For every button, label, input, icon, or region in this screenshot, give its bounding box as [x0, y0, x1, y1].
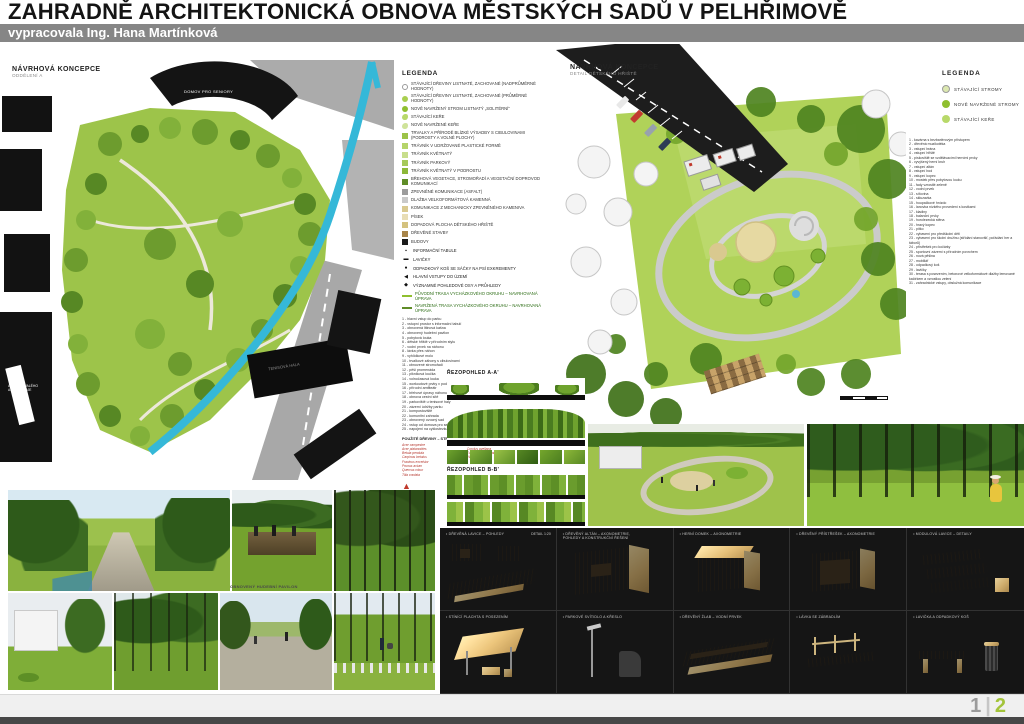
furniture-cell-shelter: • DŘEVĚNÝ PŘÍSTŘEŠEK – AXONOMETRIE — [790, 528, 907, 611]
legend-item-label: TRÁVNÍK KVĚTNATÝ V PODROSTU — [411, 169, 481, 174]
right-plan-subtitle: DETAIL DĚTSKÉHO HŘIŠTĚ — [570, 71, 658, 76]
legend-swatch — [402, 222, 408, 228]
legend-item: NOVĚ NAVRŽENÝ STROM LISTNATÝ „SOLITÉRNÍ“ — [402, 106, 550, 112]
legend-item-label: ZPEVNĚNÉ KOMUNIKACE (ASFALT) — [411, 190, 482, 195]
furniture-cell-modular-bench: • MODULOVÁ LAVICE – DETAILY — [907, 528, 1024, 611]
legend-swatch — [402, 152, 408, 158]
legend-route-item: NAVRŽENÁ TRASA VYCHÁZKOVÉHO OKRUHU – NAV… — [402, 303, 550, 313]
section-b-label: ŘEZOPOHLED B-B' — [447, 467, 499, 473]
legend-item-label: NOVĚ NAVRŽENÝ STROM LISTNATÝ „SOLITÉRNÍ“ — [411, 107, 510, 112]
legend-detail-items: STÁVAJÍCÍ STROMY NOVĚ NAVRŽENÉ STROMY ST… — [906, 85, 1024, 123]
legend-item: STÁVAJÍCÍ KEŘE — [402, 114, 550, 120]
legend-item-label: TRÁVNÍK V UDRŽOVANÉ PLASTICKÉ FORMĚ — [411, 144, 501, 149]
furniture-cell-footbridge: • LÁVKA SE ZÁBRADLÍM — [790, 611, 907, 694]
section-a2-drawing — [447, 404, 585, 446]
legend-main-title: LEGENDA — [402, 70, 550, 77]
legend-swatch — [402, 123, 408, 129]
right-plan-title-block: NÁVRHOVÁ KONCEPCE DETAIL DĚTSKÉHO HŘIŠTĚ — [570, 64, 658, 76]
site-plan-left: NÁVRHOVÁ KONCEPCE ODDĚLENÍ A DOMOV PRO S… — [0, 44, 394, 490]
areal-label: AREÁL BÝVALÉHO AGROSTROJE — [8, 384, 38, 393]
legend-swatch — [402, 179, 408, 185]
legend-detail-swatch — [942, 85, 950, 93]
visualization-photo-path — [8, 490, 230, 591]
furniture-cell-play-house: • HERNÍ DOMEK – AXONOMETRIE — [674, 528, 791, 611]
legend-item-label: BŘEHOVÁ VEGETACE, STROMOŘADÍ A VEGETAČNÍ… — [411, 177, 550, 187]
legend-item: BUDOVY — [402, 239, 550, 245]
visualization-photo-walk — [334, 593, 435, 690]
furniture-cell-bench-views: • DŘEVĚNÁ LAVICE – POHLEDY DETAIL 1:20 — [440, 528, 557, 611]
legend-item-label: TRVALKY A PŘÍRODĚ BLÍZKÉ VÝSADBY S CIBUL… — [411, 131, 550, 141]
legend-symbol-item: ▬ LAVIČKY — [402, 256, 550, 262]
route-dash-swatch — [402, 307, 412, 309]
legend-item-label: DOPADOVÁ PLOCHA DĚTSKÉHO HŘIŠTĚ — [411, 223, 493, 228]
legend-detail-swatch — [942, 115, 950, 123]
left-plan-title: NÁVRHOVÁ KONCEPCE — [12, 66, 100, 73]
page-separator: | — [981, 695, 995, 717]
furniture-cell-channel: • DŘEVĚNÝ ŽLAB – VODNÍ PRVEK — [674, 611, 791, 694]
legend-symbol-label: HLAVNÍ VSTUPY DO ÚZEMÍ — [413, 274, 467, 279]
legend-detail-item: NOVĚ NAVRŽENÉ STROMY — [942, 100, 1024, 108]
site-plan-left-map — [0, 44, 394, 490]
legend-item-label: BUDOVY — [411, 240, 429, 245]
legend-swatch — [402, 189, 408, 195]
legend-swatch — [402, 239, 408, 245]
legend-detail-item: STÁVAJÍCÍ STROMY — [942, 85, 1024, 93]
footer-bar — [0, 694, 1024, 717]
numbered-item: 30 - terasa s posezením, betonové velkof… — [909, 272, 1022, 281]
legend-swatch — [402, 231, 408, 237]
legend-main-items: STÁVAJÍCÍ DŘEVINY LISTNATÉ, ZACHOVANÉ (N… — [402, 82, 550, 245]
legend-swatch — [402, 214, 408, 220]
section-a-label: ŘEZOPOHLED A-A' — [447, 370, 499, 376]
legend-item: STÁVAJÍCÍ DŘEVINY LISTNATÉ, ZACHOVANÉ (N… — [402, 82, 550, 92]
scale-bar — [840, 396, 888, 400]
legend-symbol-item: ▪ INFORMAČNÍ TABULE — [402, 248, 550, 254]
legend-symbol-icon: ● — [402, 265, 410, 271]
legend-swatch — [402, 96, 408, 102]
legend-item: TRÁVNÍK KVĚTNATÝ V PODROSTU — [402, 168, 550, 174]
legend-item: TRVALKY A PŘÍRODĚ BLÍZKÉ VÝSADBY S CIBUL… — [402, 131, 550, 141]
visualization-photo-promenade — [220, 593, 332, 690]
subtitle-bar: vypracovala Ing. Hana Martínková — [0, 24, 1024, 42]
seniors-label: DOMOV PRO SENIORY — [184, 89, 233, 94]
legend-swatch — [402, 133, 408, 139]
legend-swatch — [402, 106, 408, 112]
visualization-photo-building — [8, 593, 112, 690]
legend-item: TRÁVNÍK V UDRŽOVANÉ PLASTICKÉ FORMĚ — [402, 143, 550, 149]
furniture-cell-shade-sail: • STÍNÍCÍ PLACHTA S POSEZENÍM — [440, 611, 557, 694]
presentation-board: ZAHRADNĚ ARCHITEKTONICKÁ OBNOVA MĚSTSKÝC… — [0, 0, 1024, 724]
legend-item: DOPADOVÁ PLOCHA DĚTSKÉHO HŘIŠTĚ — [402, 222, 550, 228]
legend-route-label: NAVRŽENÁ TRASA VYCHÁZKOVÉHO OKRUHU – NAV… — [415, 303, 550, 313]
legend-symbol-label: LAVIČKY — [413, 257, 430, 262]
legend-item-label: TRÁVNÍK KVĚTNATÝ — [411, 152, 452, 157]
legend-item-label: STÁVAJÍCÍ DŘEVINY LISTNATÉ, ZACHOVANÉ (N… — [411, 82, 550, 92]
legend-detail-label: STÁVAJÍCÍ KEŘE — [954, 117, 995, 122]
left-plan-title-block: NÁVRHOVÁ KONCEPCE ODDĚLENÍ A — [12, 66, 100, 78]
visualization-photo-deck — [232, 490, 332, 591]
legend-symbol-icon: ◆ — [402, 282, 410, 288]
legend-item-label: KOMUNIKACE Z MECHANICKY ZPEVNĚNÉHO KAMEN… — [411, 206, 524, 211]
furniture-cell-pavilion: • DŘEVĚNÝ ALTÁN – AXONOMETRIE, POHLEDY A… — [557, 528, 674, 611]
legend-item-label: DLAŽBA VELKOFORMÁTOVÁ KAMENNÁ — [411, 198, 491, 203]
legend-swatch — [402, 114, 408, 120]
legend-symbol-item: ◆ VÝZNAMNÉ POHLEDOVÉ OSY A PRŮHLEDY — [402, 282, 550, 288]
numbered-item: 31 - zahradnické vstupy, obslužná komuni… — [909, 281, 1022, 285]
legend-symbol-icon: ◀ — [402, 274, 410, 280]
legend-detail-label: STÁVAJÍCÍ STROMY — [954, 87, 1002, 92]
legend-item-label: DŘEVĚNÉ STAVBY — [411, 231, 448, 236]
furniture-cell-bench-bin: • LAVIČKA A ODPADKOVÝ KOŠ — [907, 611, 1024, 694]
sections-column: ŘEZOPOHLED A-A' ŘEZOPOHLED B-B' — [447, 368, 585, 528]
legend-swatch — [402, 197, 408, 203]
legend-item: TRÁVNÍK KVĚTNATÝ — [402, 152, 550, 158]
legend-symbol-item: ◀ HLAVNÍ VSTUPY DO ÚZEMÍ — [402, 274, 550, 280]
page-2-button[interactable]: 2 — [995, 695, 1006, 717]
legend-item: NOVĚ NAVRŽENÉ KEŘE — [402, 123, 550, 129]
legend-item: STÁVAJÍCÍ DŘEVINY LISTNATÉ, ZACHOVANÉ (P… — [402, 94, 550, 104]
legend-detail: LEGENDA STÁVAJÍCÍ STROMY NOVĚ NAVRŽENÉ S… — [906, 44, 1024, 434]
legend-swatch — [402, 143, 408, 149]
legend-item: PÍSEK — [402, 214, 550, 220]
legend-item: ZPEVNĚNÉ KOMUNIKACE (ASFALT) — [402, 189, 550, 195]
legend-item: DŘEVĚNÉ STAVBY — [402, 231, 550, 237]
legend-item-label: STÁVAJÍCÍ DŘEVINY LISTNATÉ, ZACHOVANÉ (P… — [411, 94, 550, 104]
legend-detail-label: NOVĚ NAVRŽENÉ STROMY — [954, 102, 1019, 107]
left-plan-subtitle: ODDĚLENÍ A — [12, 73, 100, 78]
legend-item-label: STÁVAJÍCÍ KEŘE — [411, 115, 444, 120]
legend-item: BŘEHOVÁ VEGETACE, STROMOŘADÍ A VEGETAČNÍ… — [402, 177, 550, 187]
page-1-button[interactable]: 1 — [970, 695, 981, 717]
legend-item-label: TRÁVNÍK PARKOVÝ — [411, 161, 450, 166]
furniture-cell-lamp-chair: • PARKOVÉ SVÍTIDLO A KŘESLO — [557, 611, 674, 694]
legend-symbol-item: ● ODPADKOVÝ KOŠ SE SÁČKY NA PSÍ EXKREMEN… — [402, 265, 550, 271]
legend-swatch — [402, 84, 408, 90]
legend-route-item: PŮVODNÍ TRASA VYCHÁZKOVÉHO OKRUHU – NAVR… — [402, 291, 550, 301]
visualization-photo-grove — [114, 593, 218, 690]
page-title: ZAHRADNĚ ARCHITEKTONICKÁ OBNOVA MĚSTSKÝC… — [0, 0, 1024, 24]
route-dash-swatch — [402, 295, 412, 297]
legend-detail-item: STÁVAJÍCÍ KEŘE — [942, 115, 1024, 123]
legend-detail-title: LEGENDA — [906, 70, 1024, 77]
legend-detail-numbered-list: 1 - kavárna s bezbariérovým přístupem2 -… — [906, 130, 1024, 285]
render-meadow-figure — [807, 424, 1024, 526]
bottom-strip — [0, 717, 1024, 724]
title-bar: ZAHRADNĚ ARCHITEKTONICKÁ OBNOVA MĚSTSKÝC… — [0, 0, 1024, 24]
legend-item: KOMUNIKACE Z MECHANICKY ZPEVNĚNÉHO KAMEN… — [402, 206, 550, 212]
legend-swatch — [402, 168, 408, 174]
legend-item: DLAŽBA VELKOFORMÁTOVÁ KAMENNÁ — [402, 197, 550, 203]
right-plan-title: NÁVRHOVÁ KONCEPCE — [570, 64, 658, 71]
visualization-photo-trees — [334, 490, 435, 591]
section-thumbnails — [447, 450, 585, 464]
legend-symbol-items: ▪ INFORMAČNÍ TABULE ▬ LAVIČKY ● ODPADKOV… — [402, 248, 550, 288]
legend-detail-swatch — [942, 100, 950, 108]
author-subtitle: vypracovala Ing. Hana Martínková — [0, 24, 1024, 42]
page-indicator: 1|2 — [970, 695, 1006, 718]
legend-symbol-label: INFORMAČNÍ TABULE — [413, 248, 457, 253]
site-plan-right: NÁVRHOVÁ KONCEPCE DETAIL DĚTSKÉHO HŘIŠTĚ — [556, 44, 906, 432]
furniture-detail-panel: • DŘEVĚNÁ LAVICE – POHLEDY DETAIL 1:20 •… — [440, 528, 1024, 694]
legend-symbol-icon: ▬ — [402, 256, 410, 262]
legend-route-label: PŮVODNÍ TRASA VYCHÁZKOVÉHO OKRUHU – NAVR… — [415, 291, 550, 301]
legend-swatch — [402, 206, 408, 212]
legend-item: TRÁVNÍK PARKOVÝ — [402, 160, 550, 166]
section-b-drawing — [447, 475, 585, 499]
legend-symbol-label: VÝZNAMNÉ POHLEDOVÉ OSY A PRŮHLEDY — [413, 283, 501, 288]
numbered-item: 23 - vybavení pro školní družinu (střídá… — [909, 236, 1022, 245]
legend-swatch — [402, 160, 408, 166]
section-a-drawing — [447, 378, 585, 400]
legend-route-items: PŮVODNÍ TRASA VYCHÁZKOVÉHO OKRUHU – NAVR… — [402, 291, 550, 313]
section-b2-drawing — [447, 502, 585, 526]
legend-symbol-label: ODPADKOVÝ KOŠ SE SÁČKY NA PSÍ EXKREMENTY — [413, 266, 516, 271]
legend-item-label: PÍSEK — [411, 215, 423, 220]
legend-symbol-icon: ▪ — [402, 248, 410, 254]
render-playground-overview — [588, 424, 804, 526]
photo-caption: OBNOVENÝ HUDEBNÍ PAVILON — [230, 584, 298, 589]
legend-item-label: NOVĚ NAVRŽENÉ KEŘE — [411, 123, 459, 128]
